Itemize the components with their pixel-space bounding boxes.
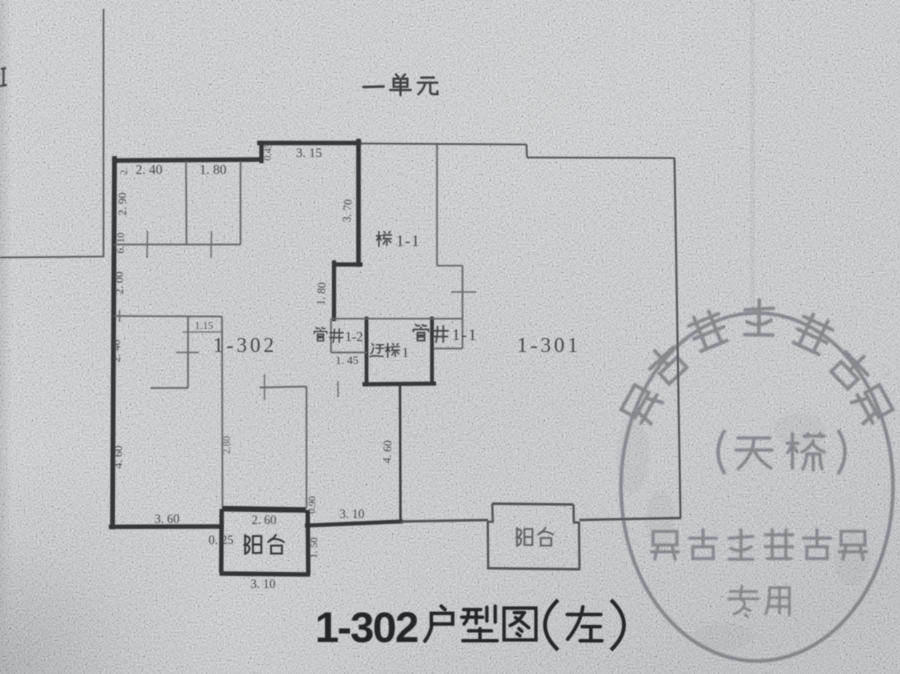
svg-text:1. 45: 1. 45 [336,355,359,367]
svg-text:1-2: 1-2 [345,329,363,344]
svg-text:1-302: 1-302 [315,604,418,652]
svg-text:2.: 2. [120,167,130,174]
svg-text:1: 1 [402,345,409,360]
svg-text:2. 40: 2. 40 [136,162,163,177]
svg-text:1-302: 1-302 [213,333,277,357]
svg-text:2. 40: 2. 40 [111,339,123,362]
svg-text:3. 10: 3. 10 [340,507,365,521]
svg-text:0.90: 0.90 [307,496,319,514]
svg-text:2. 90: 2. 90 [117,192,129,215]
svg-text:4. 60: 4. 60 [381,440,394,464]
svg-text:0.45: 0.45 [263,143,275,161]
svg-text:1. 50: 1. 50 [309,537,321,558]
svg-text:3. 60: 3. 60 [155,512,180,526]
svg-text:2. 60: 2. 60 [252,513,277,527]
svg-text:0. 25: 0. 25 [209,533,234,547]
svg-text:3. 15: 3. 15 [296,145,322,160]
svg-text:1. 80: 1. 80 [200,162,227,177]
svg-text:1-1: 1-1 [452,327,478,344]
svg-text:6. 10: 6. 10 [116,233,127,254]
svg-text:1-301: 1-301 [517,333,581,357]
svg-text:1. 80: 1. 80 [315,282,328,306]
svg-text:4. 60: 4. 60 [113,445,125,468]
svg-text:2.80: 2.80 [222,436,233,454]
svg-text:3. 10: 3. 10 [251,577,276,591]
svg-text:1-1: 1-1 [396,233,420,250]
svg-text:1.15: 1.15 [195,321,213,332]
svg-text:3. 70: 3. 70 [341,199,355,223]
svg-text:2. 00: 2. 00 [114,271,126,294]
